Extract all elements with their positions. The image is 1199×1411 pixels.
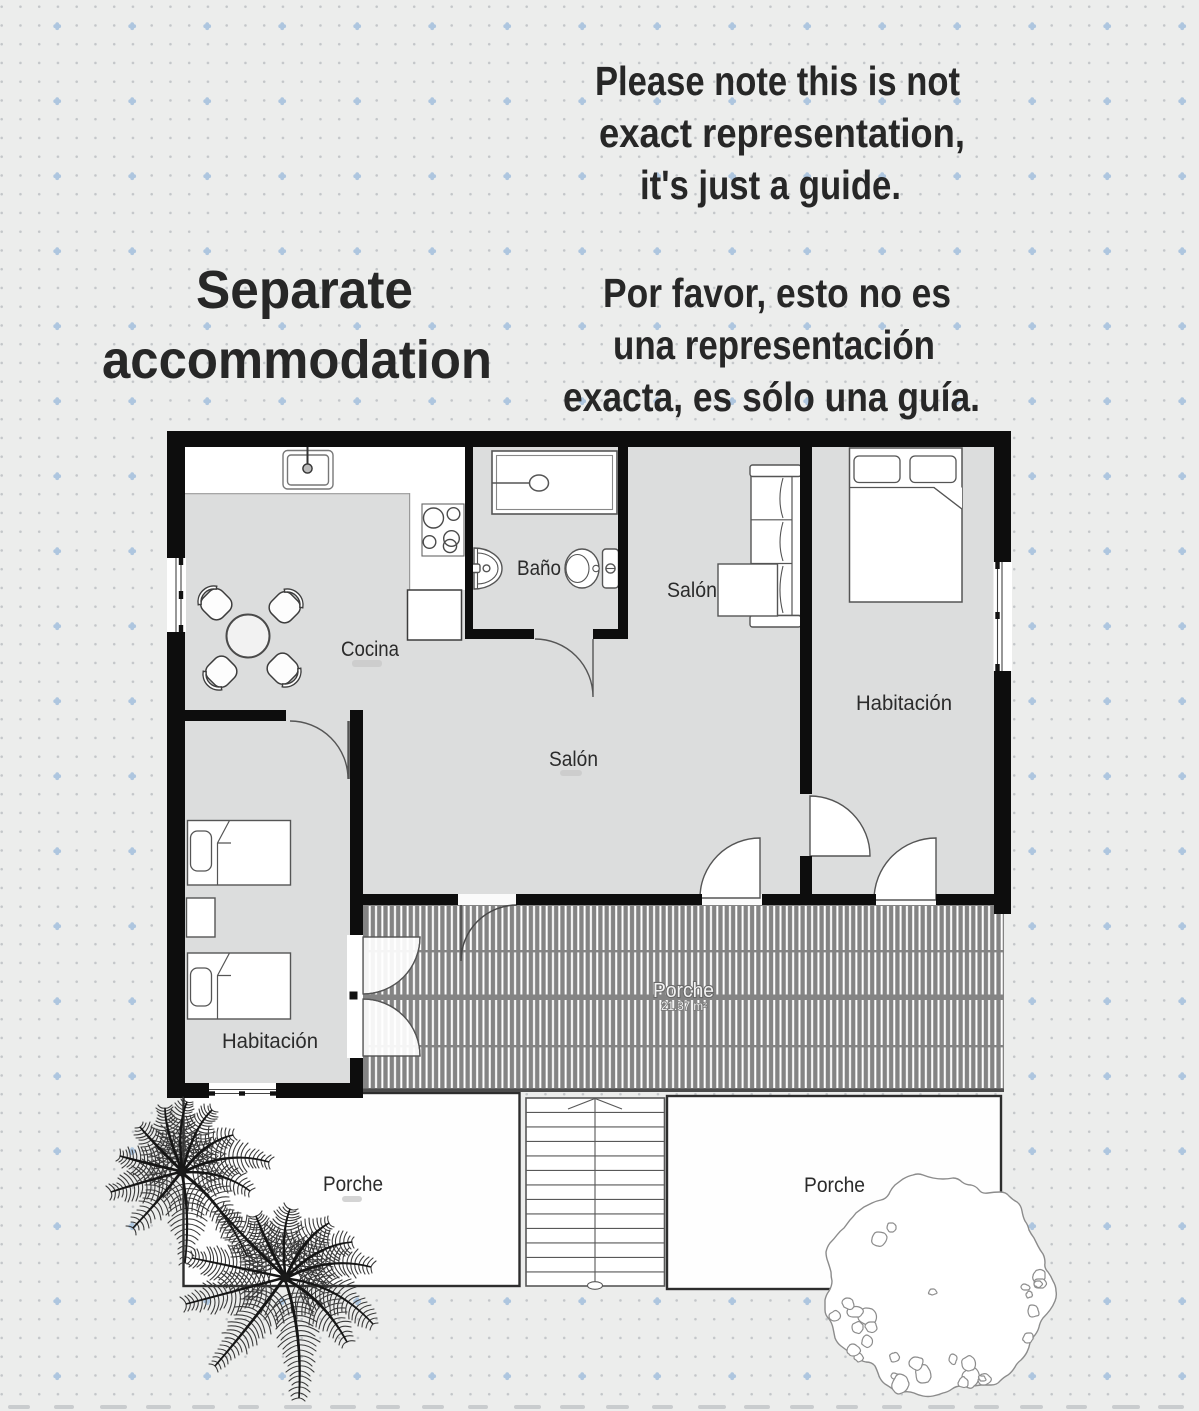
svg-text:Porche: Porche (653, 980, 714, 1002)
svg-text:Habitación: Habitación (856, 692, 952, 715)
svg-text:Salón: Salón (549, 748, 598, 771)
svg-text:Cocina: Cocina (341, 638, 399, 661)
svg-text:exacta, es sólo una guía.: exacta, es sólo una guía. (563, 374, 980, 420)
svg-text:Separate: Separate (196, 260, 413, 320)
svg-text:Please note this is not: Please note this is not (595, 58, 960, 104)
svg-text:it's just a guide.: it's just a guide. (640, 162, 901, 208)
svg-text:Salón: Salón (667, 579, 717, 602)
svg-text:Por favor, esto no es: Por favor, esto no es (603, 270, 951, 316)
svg-text:Porche: Porche (323, 1173, 383, 1196)
svg-text:Baño: Baño (517, 557, 561, 580)
svg-text:Habitación: Habitación (222, 1030, 318, 1053)
svg-text:una representación: una representación (613, 322, 935, 368)
svg-text:accommodation: accommodation (102, 330, 492, 390)
svg-text:exact representation,: exact representation, (599, 110, 965, 156)
svg-text:Porche: Porche (804, 1174, 865, 1197)
svg-text:21.37 m²: 21.37 m² (661, 1001, 707, 1013)
